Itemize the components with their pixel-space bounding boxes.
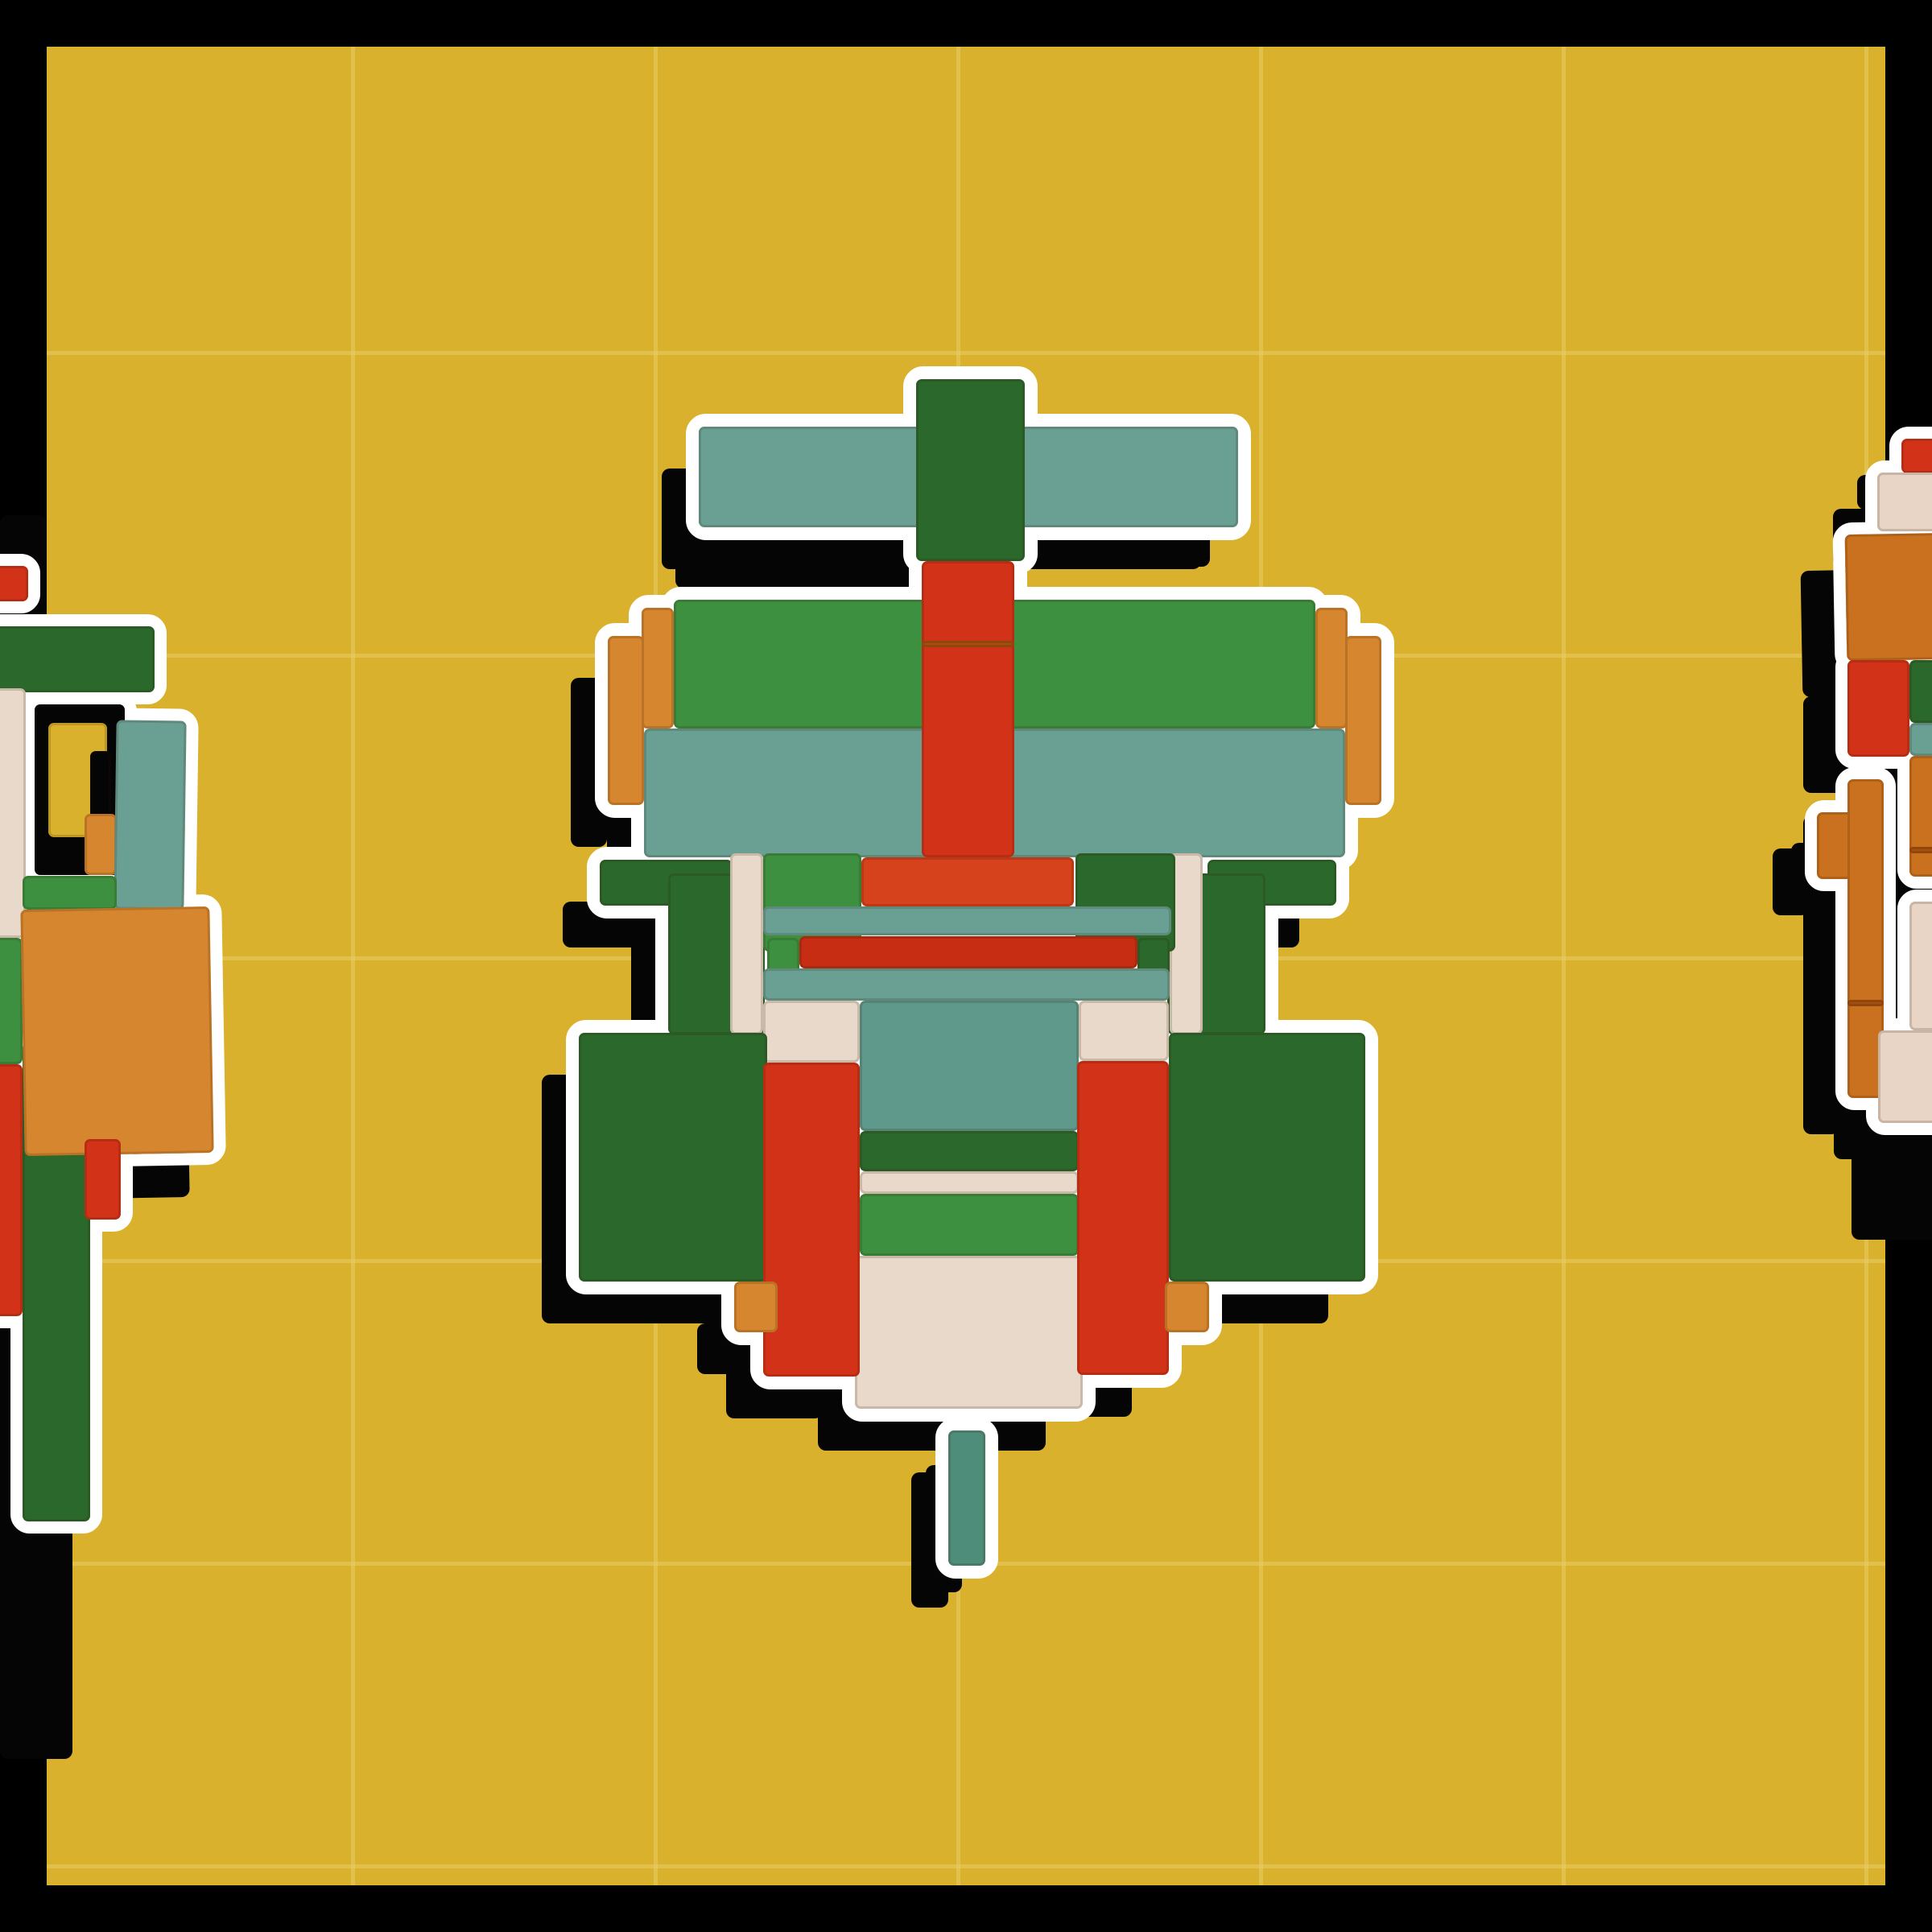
vertical-seam (1847, 1000, 1884, 1006)
abstract-artwork (0, 0, 1932, 1932)
cream-bar (1877, 473, 1932, 531)
red-mid (1847, 660, 1909, 757)
cream-big (1878, 1030, 1932, 1123)
figure-right (0, 0, 1932, 1932)
orange-big (1845, 533, 1932, 661)
red-top (1901, 439, 1932, 473)
orange-column (1909, 756, 1932, 877)
cream-tall (1909, 902, 1932, 1030)
figure-right-fill-layer (0, 0, 1932, 1932)
green-square (1909, 660, 1932, 723)
figures (0, 0, 1932, 1932)
column-seam (1909, 847, 1932, 853)
teal-square (1909, 723, 1932, 756)
